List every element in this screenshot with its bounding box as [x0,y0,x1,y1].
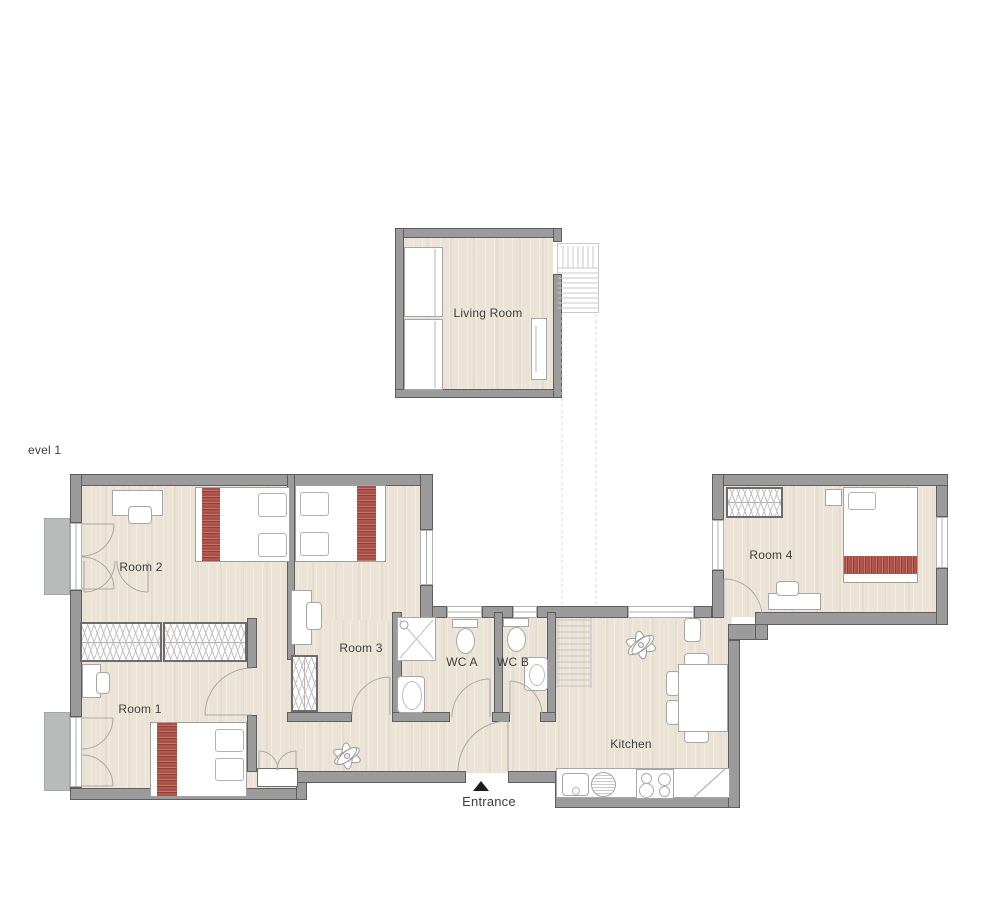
wall-segment [420,585,433,618]
bed-pillow [848,492,876,510]
wardrobe [291,655,318,712]
stair-connector-lines [562,314,596,604]
wall-segment [247,618,257,668]
toilet-bowl [456,628,475,654]
wall-segment [287,712,352,722]
toilet-bowl [507,627,526,652]
wall-segment [547,612,556,718]
balcony-room1 [44,712,70,791]
floor-plan: evel 1 Living Room Room 2 Room 3 Room 1 … [0,0,1000,905]
room4-bed [843,487,918,583]
chair [306,602,322,630]
kitchen-sink [562,773,589,796]
sink-basin [529,664,545,686]
wall-segment [247,715,257,772]
burner [659,786,670,797]
burner [639,783,654,798]
entrance-marker-icon [473,781,489,791]
wc-b-label: WC B [497,655,529,669]
window [420,530,433,585]
level-label: evel 1 [28,443,61,457]
room3-bed [295,485,386,562]
wall-segment [712,474,724,520]
sofa [404,247,443,317]
bed-pillow [258,493,287,517]
entrance-label: Entrance [462,794,516,809]
kitchen-label: Kitchen [610,737,651,751]
bed-pillow [215,729,244,752]
drain [572,787,580,795]
window [513,606,537,618]
bed-pillow [258,533,287,557]
window [712,520,724,570]
bed-blanket [202,488,220,561]
kitchen-sink-rack [591,772,616,797]
bed-blanket [357,486,376,561]
wall-segment [395,228,404,398]
wall-segment [296,771,466,783]
window [628,606,694,618]
dining-table [678,664,728,732]
wall-segment [392,712,450,722]
room2-label: Room 2 [119,560,162,574]
bed-pillow [300,492,329,516]
wardrobe [726,487,783,518]
tv-unit [531,318,547,380]
wall-segment [395,228,562,238]
wall-segment [70,474,82,523]
nightstand [825,489,842,506]
closet [257,768,298,787]
wall-segment [553,274,562,398]
wall-segment [755,612,948,625]
chair [128,506,152,524]
toilet-tank [503,618,529,627]
wall-segment [492,712,510,722]
window [936,517,948,568]
toilet-tank [452,619,478,628]
wall-segment [936,568,948,625]
chair [96,672,110,694]
bathtub-basin [402,681,422,710]
wall-segment [712,474,948,486]
wc-a-label: WC A [446,655,477,669]
bed-blanket [157,723,177,796]
shower [397,617,436,661]
sofa [404,319,443,390]
stove [636,769,674,799]
room4-label: Room 4 [749,548,792,562]
bathtub [397,676,425,713]
room3-label: Room 3 [339,641,382,655]
room1-label: Room 1 [118,702,161,716]
wall-segment [540,712,556,722]
living-room-label: Living Room [454,306,523,320]
upper-stairs-box [557,243,599,313]
closet [163,622,247,662]
kitchen-appliance [684,618,701,642]
wall-segment [395,389,562,398]
window [70,523,82,590]
burner [658,773,671,786]
window [447,606,482,618]
wall-segment [553,228,562,242]
room2-bed [195,487,290,562]
wall-segment [712,570,724,618]
room1-bed [150,722,247,797]
chair [776,581,799,596]
bed-pillow [215,758,244,781]
bed-pillow [300,532,329,556]
balcony-room2 [44,518,70,595]
window [70,717,82,787]
wall-segment [694,606,712,618]
bed-blanket [844,556,917,574]
closet [80,622,162,662]
wall-segment [420,474,433,530]
